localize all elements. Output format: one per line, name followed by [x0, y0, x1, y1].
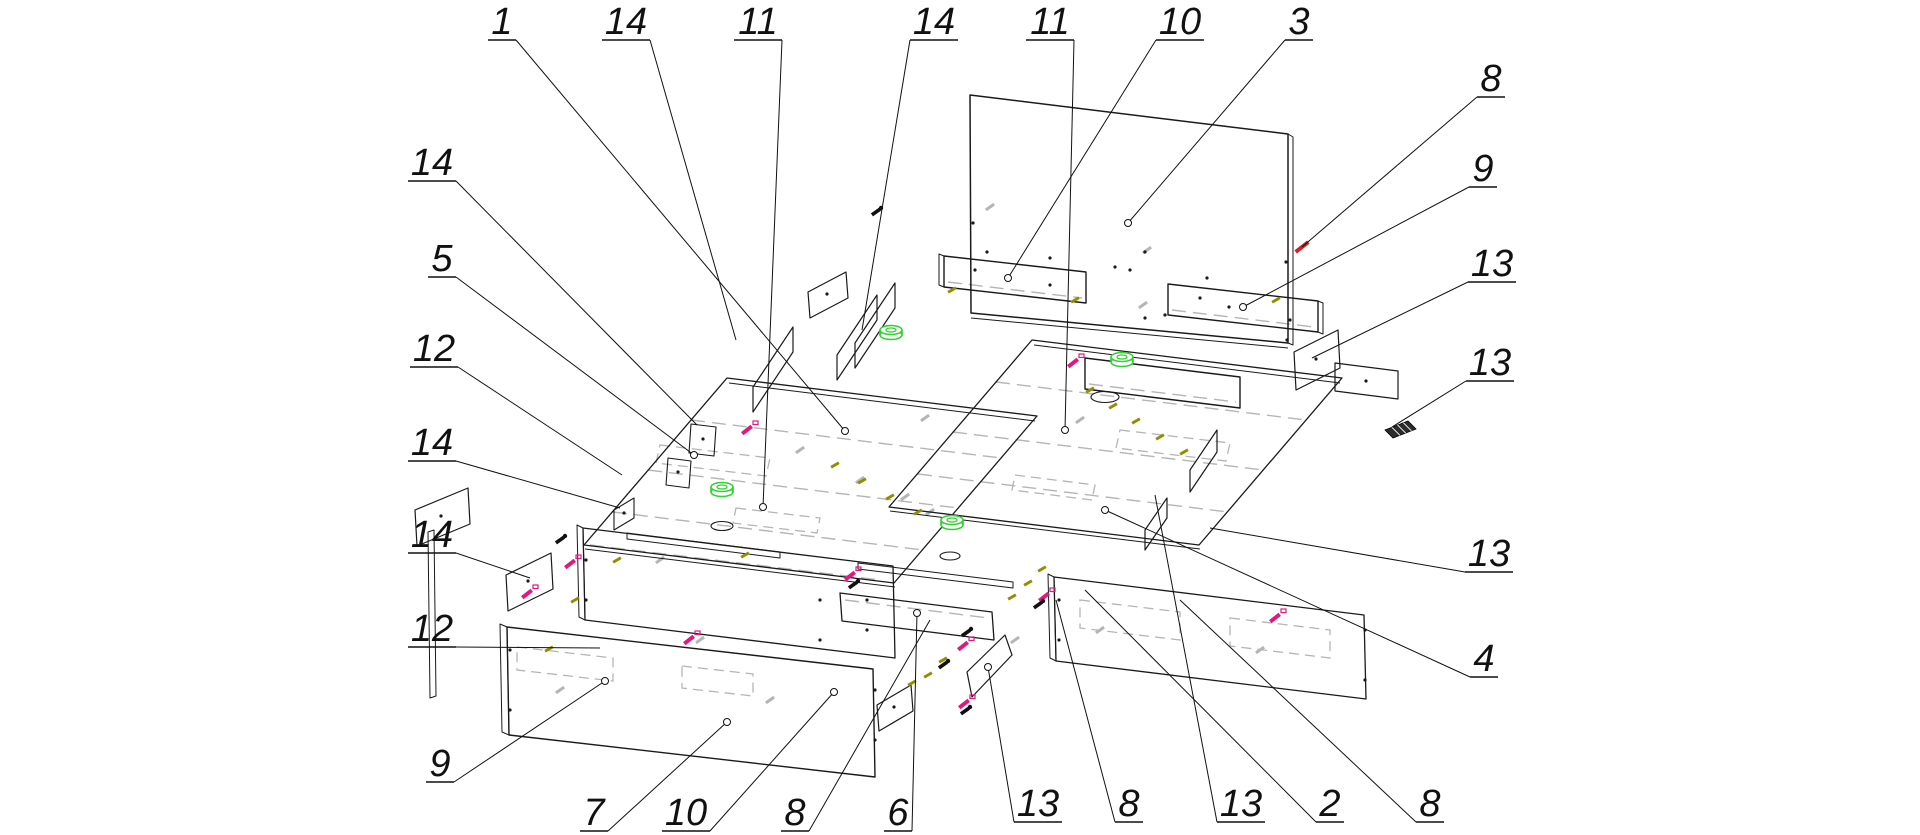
panel-side-rail-right: [1054, 577, 1366, 699]
drill-dot: [1364, 379, 1367, 382]
exploded-assembly-diagram: 1141114111038913131341451214141297108613…: [0, 0, 1920, 835]
callout-target-hole-7-20: [724, 719, 731, 726]
callout-label-11-2: 11: [738, 1, 777, 43]
confirmat-screw-icon: [564, 559, 576, 570]
drill-dot: [508, 708, 511, 711]
drill-dot: [1285, 338, 1288, 341]
drill-dot: [526, 579, 529, 582]
dowel-icon: [1037, 565, 1046, 572]
hex-key-icon: [1041, 599, 1045, 603]
drill-dot: [865, 628, 868, 631]
callout-target-hole-4-12: [1102, 507, 1109, 514]
drill-dot: [701, 437, 704, 440]
panel-rear-rail-right-cap: [1318, 301, 1323, 334]
panel-front-panel-cap: [500, 624, 509, 735]
drill-dot: [825, 292, 828, 295]
callout-label-9-19: 9: [429, 743, 450, 785]
drill-dot: [1143, 250, 1146, 253]
drill-dot: [1048, 256, 1051, 259]
callout-target-hole-13-24: [985, 664, 992, 671]
callout-leader-5-14: [456, 277, 694, 455]
drill-dot: [971, 221, 974, 224]
confirmat-screw-icon: [957, 641, 969, 652]
drill-dot: [1057, 598, 1060, 601]
callout-target-hole-3-6: [1125, 220, 1132, 227]
cam-grommet-icon: [941, 516, 963, 525]
callout-target-hole-6-23: [914, 610, 921, 617]
callout-target-hole-10-21: [831, 689, 838, 696]
callout-leader-1-0: [516, 40, 845, 431]
drill-dot: [865, 598, 868, 601]
callout-label-13-24: 13: [1017, 783, 1059, 825]
callout-leader-13-10: [1392, 381, 1466, 427]
drill-dot: [1048, 283, 1051, 286]
drill-dot: [584, 598, 587, 601]
callout-label-14-1: 14: [605, 1, 647, 43]
callout-label-8-28: 8: [1419, 783, 1440, 825]
callout-leader-13-11: [1210, 528, 1465, 572]
drill-dot: [818, 638, 821, 641]
callout-label-13-9: 13: [1471, 243, 1513, 285]
drill-dot: [892, 705, 895, 708]
callout-label-13-26: 13: [1220, 783, 1262, 825]
callout-target-hole-11-2: [760, 504, 767, 511]
drill-dot: [1284, 260, 1287, 263]
gray-screw-icon: [695, 636, 705, 644]
callout-label-14-17: 14: [411, 514, 453, 556]
callout-leader-8-7: [1302, 97, 1477, 247]
drill-dot: [1128, 268, 1131, 271]
callout-leader-14-13: [456, 181, 697, 425]
callout-target-hole-9-19: [602, 678, 609, 685]
panel-rear-rail-left-cap: [939, 254, 944, 287]
drill-dot: [1163, 313, 1166, 316]
drill-dot: [873, 688, 876, 691]
dowel-icon: [923, 671, 932, 678]
drill-dot: [873, 738, 876, 741]
panel-plate-b: [506, 553, 553, 611]
hex-key-icon: [968, 705, 972, 709]
callout-leader-6-23: [912, 613, 917, 831]
callout-leader-14-1: [650, 40, 736, 340]
drill-dot: [1143, 316, 1146, 319]
callout-label-9-8: 9: [1472, 148, 1493, 190]
callout-leader-13-24: [988, 667, 1014, 822]
cam-grommet-icon: [1111, 353, 1133, 362]
callout-label-14-16: 14: [411, 422, 453, 464]
callout-label-2-27: 2: [1318, 783, 1340, 825]
cam-grommet-icon: [711, 483, 733, 492]
drill-dot: [985, 250, 988, 253]
callout-label-8-22: 8: [784, 792, 805, 834]
callout-leader-14-17: [456, 553, 530, 578]
callout-label-4-12: 4: [1473, 638, 1494, 680]
drill-dot: [1363, 678, 1366, 681]
dowel-icon: [1023, 579, 1032, 586]
hex-key-icon: [856, 579, 860, 583]
confirmat-screw-icon: [969, 637, 974, 641]
callout-label-6-23: 6: [887, 792, 909, 834]
callout-target-hole-9-8: [1240, 304, 1247, 311]
callout-label-14-3: 14: [913, 1, 955, 43]
hex-key-icon: [969, 627, 973, 631]
confirmat-screw-icon: [683, 635, 695, 646]
vent-hole: [940, 552, 960, 560]
callout-label-7-20: 7: [583, 792, 606, 834]
callout-target-hole-11-4: [1062, 427, 1069, 434]
drill-dot: [508, 648, 511, 651]
callout-label-3-6: 3: [1288, 1, 1309, 43]
callout-leader-13-9: [1312, 282, 1468, 358]
drill-dot: [584, 558, 587, 561]
callout-leader-14-16: [456, 461, 620, 508]
dowel-icon: [1007, 593, 1016, 600]
hatched-foot-part: [1385, 421, 1416, 438]
drill-dot: [1057, 638, 1060, 641]
callout-label-12-15: 12: [413, 328, 455, 370]
callout-label-13-11: 13: [1468, 533, 1510, 575]
callout-target-hole-1-0: [842, 428, 849, 435]
callout-label-14-13: 14: [411, 142, 453, 184]
drill-dot: [1227, 305, 1230, 308]
cam-grommet-icon: [880, 326, 902, 335]
callout-leader-14-3: [862, 40, 910, 330]
callout-target-hole-10-5: [1005, 275, 1012, 282]
drill-dot: [818, 598, 821, 601]
drill-dot: [1198, 296, 1201, 299]
drill-dot: [973, 268, 976, 271]
drill-dot: [676, 470, 679, 473]
callout-label-1-0: 1: [491, 1, 512, 43]
hex-key-icon: [563, 534, 567, 538]
callout-label-13-10: 13: [1469, 342, 1511, 384]
callout-target-hole-5-14: [691, 452, 698, 459]
drill-dot: [622, 511, 625, 514]
drill-dot: [1113, 265, 1116, 268]
drill-dot: [1288, 318, 1291, 321]
callout-label-8-7: 8: [1480, 58, 1501, 100]
callout-label-10-5: 10: [1159, 1, 1201, 43]
diagram-canvas: 1141114111038913131341451214141297108613…: [0, 0, 1920, 835]
drill-dot: [1205, 276, 1208, 279]
callout-label-10-21: 10: [665, 792, 707, 834]
callout-label-12-18: 12: [411, 608, 453, 650]
callout-label-8-25: 8: [1118, 783, 1139, 825]
drill-dot: [1314, 357, 1317, 360]
callout-label-11-4: 11: [1030, 1, 1069, 43]
callout-label-5-14: 5: [431, 238, 453, 280]
gray-screw-icon: [1010, 636, 1020, 644]
